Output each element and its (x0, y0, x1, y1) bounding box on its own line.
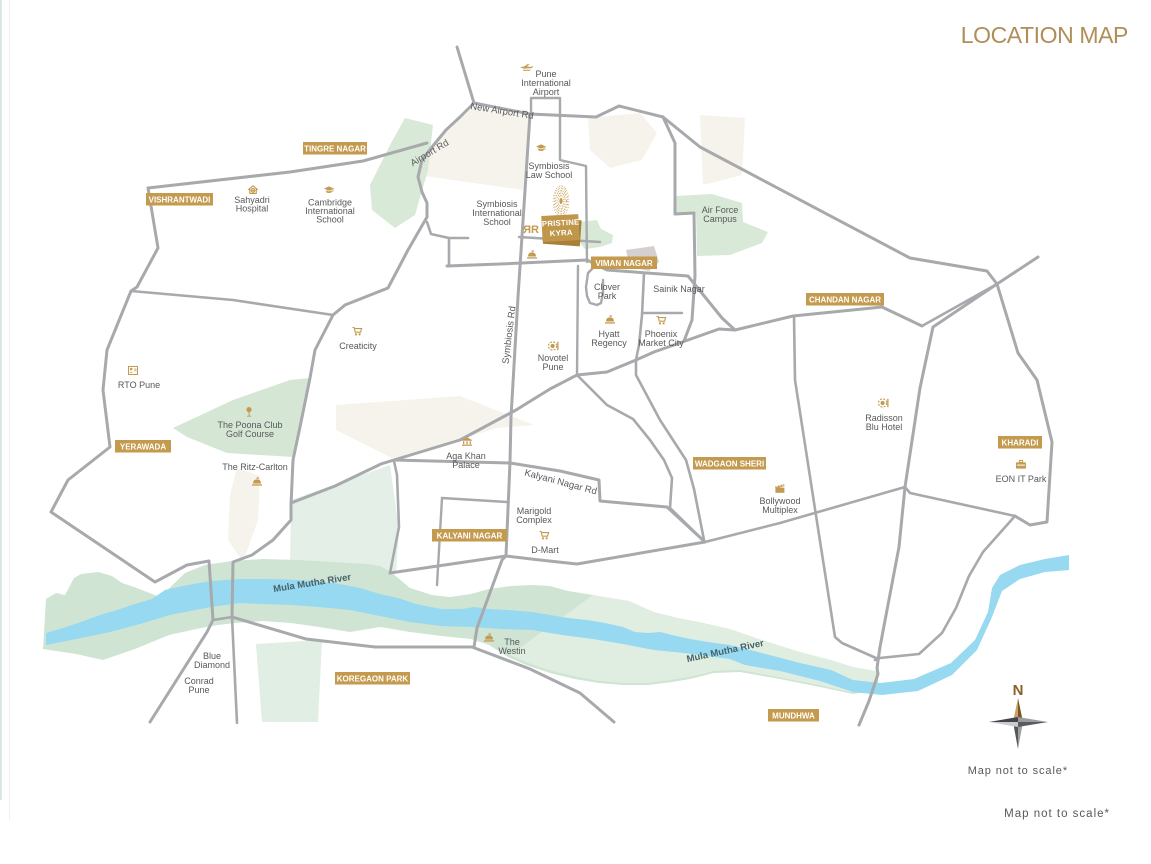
svg-text:Park: Park (598, 291, 617, 301)
svg-text:Complex: Complex (516, 515, 552, 525)
svg-text:KALYANI NAGAR: KALYANI NAGAR (437, 532, 503, 541)
svg-text:Creaticity: Creaticity (339, 341, 377, 351)
svg-text:N: N (1013, 682, 1024, 699)
svg-text:Pune: Pune (188, 685, 209, 695)
svg-text:Westin: Westin (498, 646, 525, 656)
svg-text:Multiplex: Multiplex (762, 505, 798, 515)
svg-text:Law School: Law School (526, 170, 573, 180)
svg-text:Market City: Market City (638, 338, 684, 348)
svg-text:TINGRE NAGAR: TINGRE NAGAR (304, 145, 366, 154)
svg-text:The Ritz-Carlton: The Ritz-Carlton (222, 462, 288, 472)
svg-text:Blu Hotel: Blu Hotel (866, 422, 903, 432)
svg-text:School: School (483, 217, 511, 227)
svg-text:LOCATION MAP: LOCATION MAP (961, 22, 1128, 48)
svg-text:D-Mart: D-Mart (531, 545, 559, 555)
svg-text:WADGAON SHERI: WADGAON SHERI (695, 460, 764, 469)
svg-text:Airport: Airport (533, 87, 560, 97)
svg-text:CHANDAN NAGAR: CHANDAN NAGAR (809, 296, 881, 305)
svg-text:YERAWADA: YERAWADA (120, 443, 166, 452)
svg-text:Palace: Palace (452, 460, 480, 470)
svg-text:RTO Pune: RTO Pune (118, 380, 160, 390)
svg-text:Sainik Nagar: Sainik Nagar (653, 284, 705, 294)
svg-text:Map not to scale*: Map not to scale* (1004, 808, 1110, 820)
svg-text:EON IT Park: EON IT Park (996, 474, 1047, 484)
svg-text:ЯR: ЯR (523, 224, 539, 236)
svg-text:Golf Course: Golf Course (226, 429, 274, 439)
svg-text:Diamond: Diamond (194, 660, 230, 670)
svg-text:Regency: Regency (591, 338, 627, 348)
svg-text:VISHRANTWADI: VISHRANTWADI (149, 196, 211, 205)
svg-text:Campus: Campus (703, 214, 737, 224)
svg-text:KHARADI: KHARADI (1002, 439, 1039, 448)
svg-text:School: School (316, 215, 344, 225)
svg-text:VIMAN NAGAR: VIMAN NAGAR (595, 259, 653, 268)
svg-text:KYRA: KYRA (550, 228, 574, 238)
svg-text:KOREGAON PARK: KOREGAON PARK (337, 675, 409, 684)
svg-text:MUNDHWA: MUNDHWA (772, 712, 815, 721)
svg-text:Pune: Pune (542, 362, 563, 372)
svg-text:Map not to scale*: Map not to scale* (968, 765, 1068, 777)
svg-text:Hospital: Hospital (236, 204, 269, 214)
